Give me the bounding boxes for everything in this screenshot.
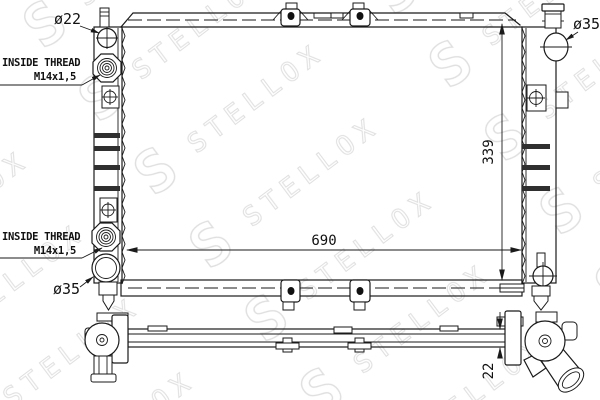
threaded-port-top (93, 54, 121, 82)
top-stud (100, 8, 109, 27)
filler-neck (542, 4, 564, 28)
dimension-height-value: 339 (481, 139, 497, 164)
inside-thread-top-line1: INSIDE THREAD (2, 57, 80, 69)
threaded-port-bottom (92, 223, 120, 251)
dimension-depth-value: 22 (481, 363, 497, 380)
dimension-width-value: 690 (311, 233, 336, 249)
screw-bracket-upper (102, 86, 119, 108)
inside-thread-bottom-line1: INSIDE THREAD (2, 231, 80, 243)
diameter-35-top-text: ø35 (573, 15, 600, 33)
inside-thread-top-line2: M14x1,5 (34, 71, 76, 83)
radiator-technical-drawing: S STELLOX (0, 0, 600, 400)
inside-thread-bottom-line2: M14x1,5 (34, 245, 76, 257)
foot-plate (500, 284, 524, 292)
drawing-canvas: S STELLOX (0, 0, 600, 400)
port-35mm-bottom (92, 254, 120, 282)
diameter-22-text: ø22 (54, 10, 81, 28)
screw-bracket-lower (100, 198, 117, 222)
diameter-35-bottom-text: ø35 (53, 280, 80, 298)
outlet-stub-down (91, 356, 116, 382)
